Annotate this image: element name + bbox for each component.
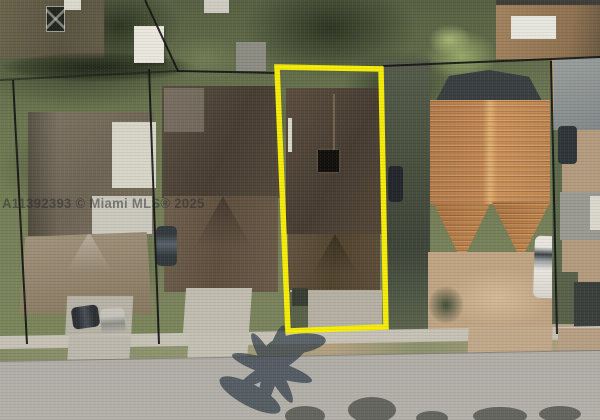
aerial-photo: A11392393 © Miami MLS® 2025: [0, 0, 600, 420]
photo-grain: [0, 0, 600, 420]
